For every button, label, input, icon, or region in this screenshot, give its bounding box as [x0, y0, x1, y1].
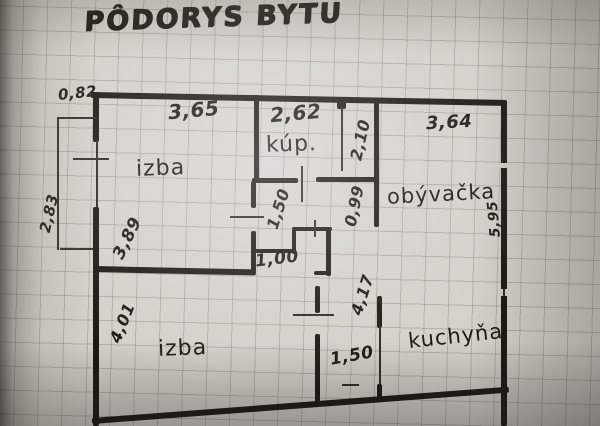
dim-line-offset-vertical [57, 117, 59, 250]
tick-left-window [73, 158, 109, 160]
graph-paper-grid [0, 0, 600, 426]
room-label-kupelna: kúp. [266, 133, 318, 157]
floorplan-photo: PÔDORYS BYTU izba kúp. obývačka izba kuc… [0, 0, 600, 426]
dim-label-5-95: 5,95 [486, 200, 503, 238]
dim-line-bath-depth [341, 107, 343, 171]
dim-label-0-82: 0,82 [57, 84, 97, 103]
tick-corridor-door [293, 314, 334, 316]
wall-right-thin-joint [503, 289, 505, 296]
wall-connector-upper [251, 181, 256, 208]
wall-kitchen-left [377, 296, 382, 328]
dim-line-offset-horizontal [57, 117, 97, 119]
wall-notch-foot [314, 271, 331, 275]
dim-label-3-64: 3,64 [426, 113, 473, 133]
tick-door-upper [230, 216, 264, 218]
dim-line-offset-foot [60, 248, 93, 250]
wall-left-lower [93, 207, 99, 426]
room-label-obyvacka: obývačka [387, 181, 496, 208]
wall-hall-right [374, 100, 379, 227]
tick-notch [314, 220, 316, 237]
wall-corridor-lower [315, 334, 320, 404]
wall-corridor-upper [315, 286, 320, 313]
wall-kitchen-left-joint [377, 384, 382, 398]
wall-kitchen-left-thin [379, 326, 381, 386]
wall-bathroom-left [254, 95, 259, 183]
wall-right [501, 100, 507, 426]
dim-label-3-65: 3,65 [167, 98, 220, 122]
room-label-izba-bottom: izba [158, 337, 208, 361]
wall-bathroom-bottom-right [316, 177, 379, 182]
wall-right-break [499, 163, 509, 168]
tick-bathroom-door [301, 166, 303, 202]
dim-label-2-62: 2,62 [269, 101, 322, 125]
tick-kitchen-door [342, 384, 359, 386]
wall-left-window [96, 140, 98, 210]
room-label-izba-top: izba [136, 157, 186, 181]
wall-notch-right [326, 227, 331, 276]
wall-bathroom-bottom-left [252, 178, 298, 183]
